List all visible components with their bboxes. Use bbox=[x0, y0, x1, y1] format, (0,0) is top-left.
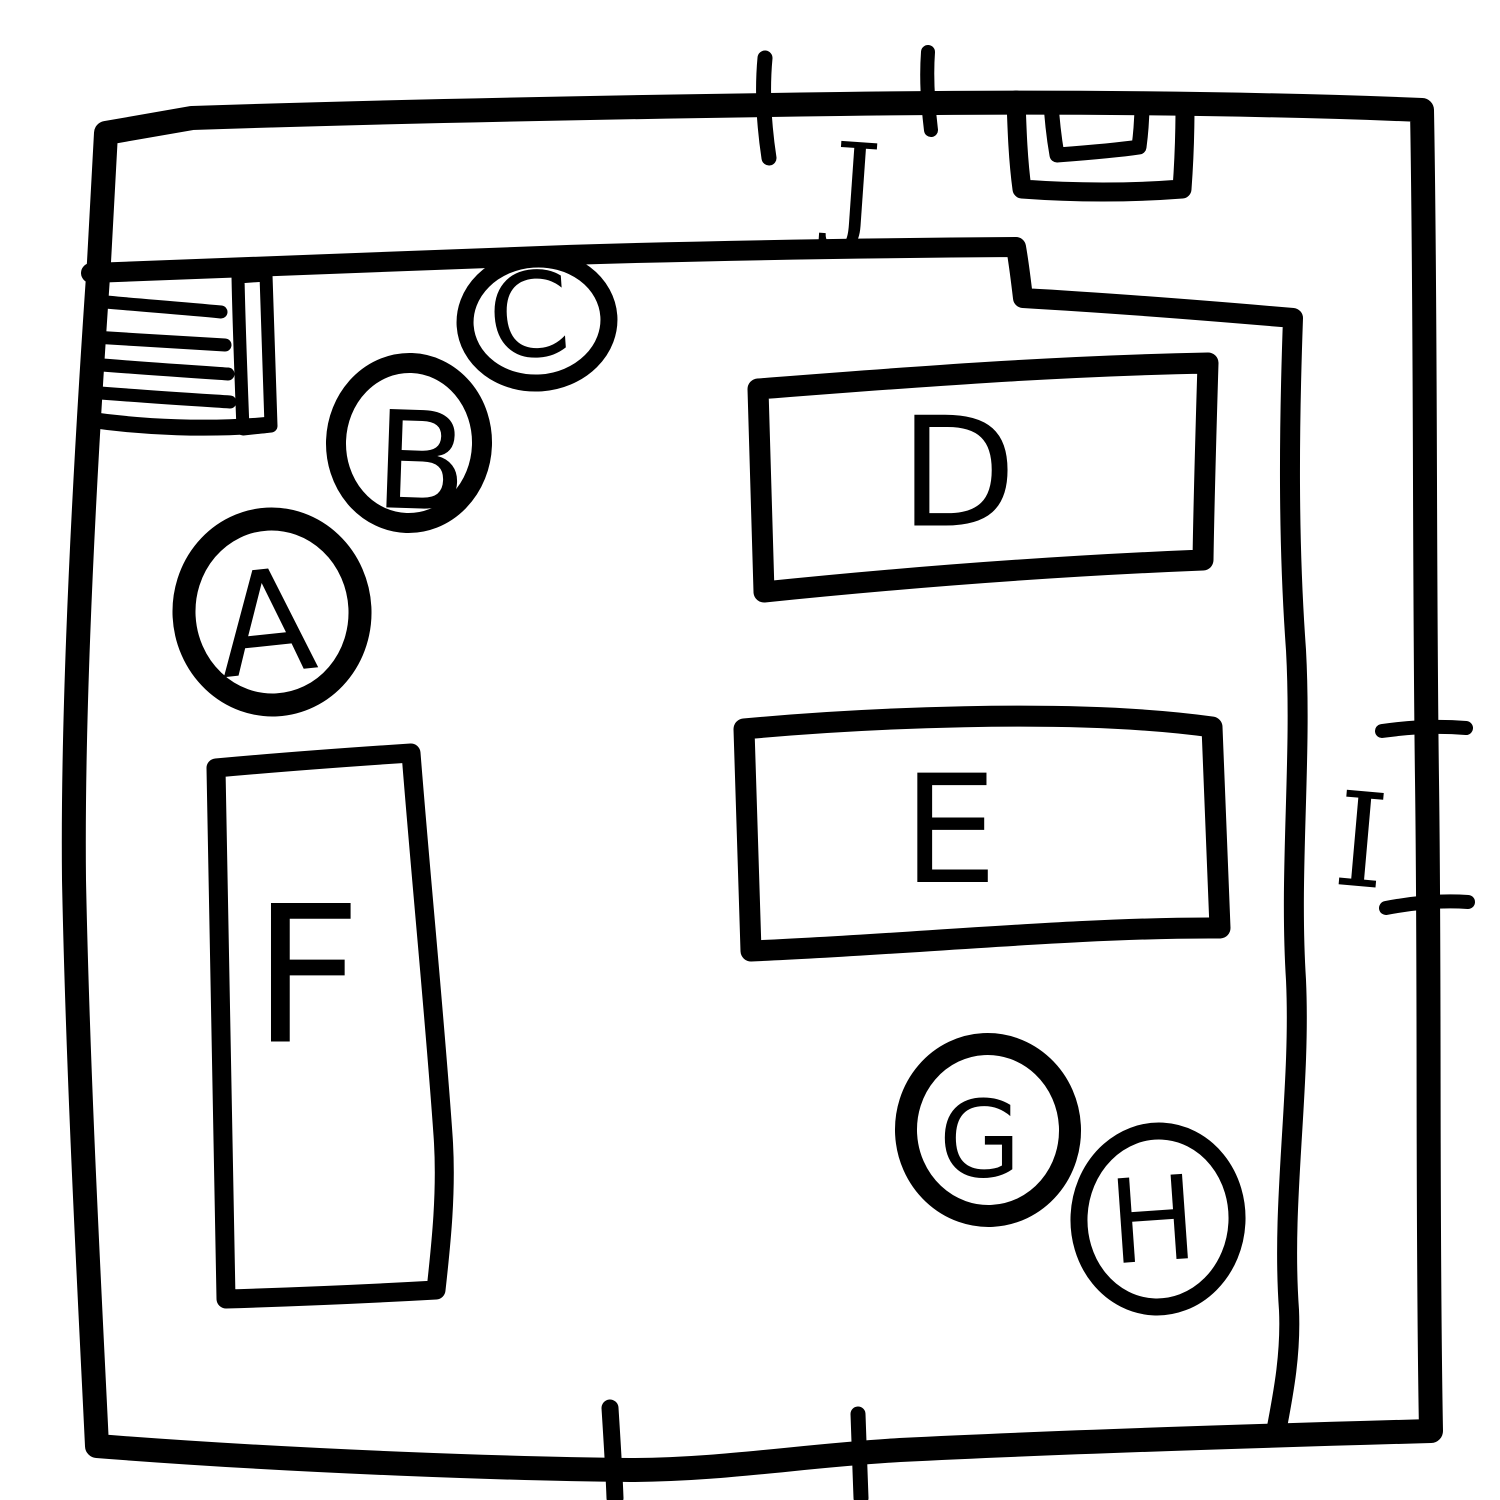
marker-g: G bbox=[902, 1040, 1075, 1220]
zone-d-label: D bbox=[899, 385, 1016, 562]
zone-f-label: F bbox=[252, 866, 361, 1087]
opening-j-label: J bbox=[818, 116, 885, 258]
door-tick bbox=[1382, 727, 1466, 731]
marker-h-label: H bbox=[1105, 1151, 1201, 1292]
door-tick bbox=[610, 1408, 615, 1498]
stairs-hatch-line bbox=[95, 301, 221, 312]
marker-b: B bbox=[333, 361, 484, 543]
stairs-hatch-line bbox=[93, 337, 225, 345]
zone-d: D bbox=[758, 363, 1208, 592]
marker-g-label: G bbox=[939, 1079, 1021, 1202]
marker-c-label: C bbox=[483, 245, 574, 387]
zone-e: E bbox=[744, 716, 1220, 951]
door-tick bbox=[764, 58, 769, 158]
marker-c: C bbox=[461, 245, 613, 388]
door-tick bbox=[927, 52, 931, 130]
door-tick bbox=[858, 1414, 861, 1498]
marker-a-label: A bbox=[209, 537, 323, 711]
opening-i-label: I bbox=[1329, 763, 1393, 919]
marker-h: H bbox=[1075, 1127, 1242, 1311]
marker-a: A bbox=[179, 515, 364, 712]
opening-j: J bbox=[764, 52, 931, 257]
stairs-landing-bar bbox=[238, 275, 271, 429]
marker-b-label: B bbox=[372, 382, 470, 542]
stairs bbox=[85, 275, 271, 429]
door-tick bbox=[1386, 901, 1468, 908]
floor-plan-sketch: J I D E F A B C G bbox=[0, 0, 1500, 1500]
stairs-hatch-line bbox=[89, 392, 230, 402]
stairs-hatch-line bbox=[91, 364, 228, 374]
zone-f: F bbox=[216, 753, 444, 1299]
opening-i: I bbox=[1329, 727, 1468, 919]
zone-e-label: E bbox=[903, 744, 998, 918]
